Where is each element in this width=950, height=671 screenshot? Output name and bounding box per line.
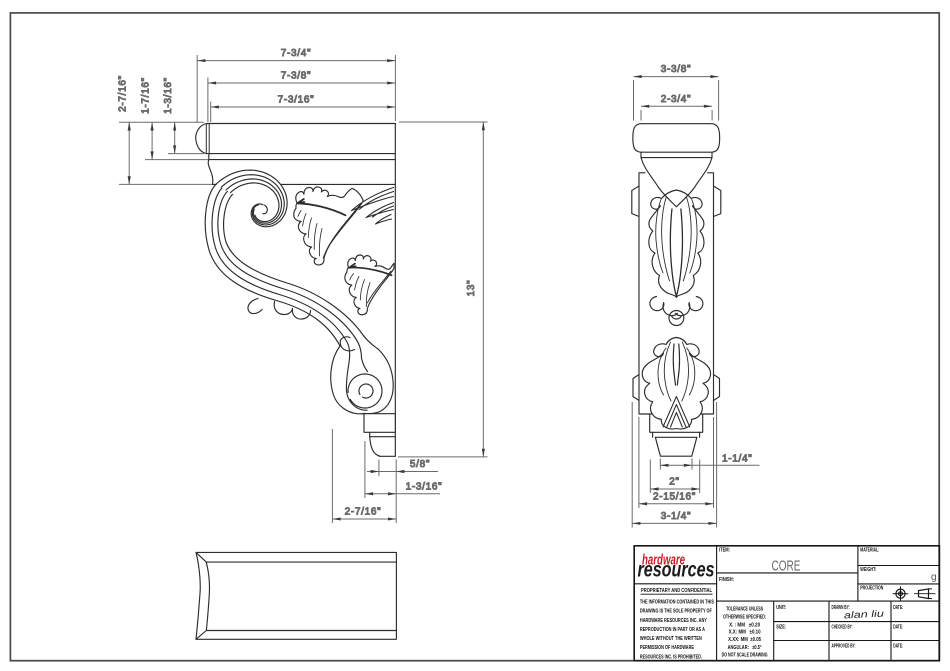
svg-text:7-3/4": 7-3/4" [281, 48, 312, 59]
svg-text:2": 2" [669, 477, 680, 488]
svg-text:X.X: MM ±0.10: X.X: MM ±0.10 [729, 630, 761, 636]
svg-text:2-7/16": 2-7/16" [118, 75, 129, 112]
svg-text:WEIGHT:: WEIGHT: [860, 567, 876, 573]
svg-text:THE INFORMATION CONTAINED IN T: THE INFORMATION CONTAINED IN THIS [640, 599, 714, 605]
svg-text:PROJECTION: PROJECTION [860, 586, 883, 592]
svg-text:2-7/16": 2-7/16" [345, 507, 382, 518]
svg-text:5/8": 5/8" [410, 459, 430, 470]
svg-text:APPROVED BY:: APPROVED BY: [832, 643, 856, 649]
svg-text:3-3/8": 3-3/8" [661, 64, 692, 75]
svg-text:REPRODUCTION IN PART OR AS A: REPRODUCTION IN PART OR AS A [640, 627, 705, 633]
svg-text:CORE: CORE [772, 559, 801, 575]
svg-text:3-1/4": 3-1/4" [661, 511, 692, 522]
svg-text:DRAWING IS THE SOLE PROPERTY O: DRAWING IS THE SOLE PROPERTY OF [640, 609, 712, 615]
svg-text:7-3/16": 7-3/16" [278, 95, 315, 106]
svg-text:HARDWARE RESOURCES INC. ANY: HARDWARE RESOURCES INC. ANY [640, 618, 707, 624]
svg-text:WHOLE WITHOUT THE WRITTEN: WHOLE WITHOUT THE WRITTEN [640, 636, 702, 642]
svg-text:DATE:: DATE: [893, 605, 903, 611]
svg-text:PROPRIETARY AND CONFIDENTIAL: PROPRIETARY AND CONFIDENTIAL [641, 588, 712, 594]
svg-text:PERMISSION OF HARDWARE: PERMISSION OF HARDWARE [640, 645, 694, 651]
svg-text:alan liu: alan liu [844, 608, 885, 621]
svg-text:1-3/16": 1-3/16" [406, 481, 443, 492]
svg-text:UNIT:: UNIT: [776, 605, 786, 611]
svg-text:DATE:: DATE: [893, 624, 903, 630]
svg-text:X. : MM ±0.20: X. : MM ±0.20 [729, 623, 760, 629]
svg-text:2-15/16": 2-15/16" [653, 491, 696, 502]
svg-text:1-3/16": 1-3/16" [163, 77, 174, 114]
svg-text:7-3/8": 7-3/8" [281, 71, 312, 82]
svg-text:ANGULAR: ±0.5°: ANGULAR: ±0.5° [728, 645, 762, 651]
svg-text:X.XX: MM ±0.05: X.XX: MM ±0.05 [728, 637, 761, 643]
svg-text:13": 13" [466, 280, 477, 297]
svg-text:DATE:: DATE: [893, 643, 903, 649]
svg-text:ITEM:: ITEM: [719, 548, 730, 554]
svg-text:TOLERANCE UNLESS: TOLERANCE UNLESS [726, 606, 763, 612]
svg-text:g: g [931, 572, 937, 583]
svg-text:2-3/4": 2-3/4" [661, 94, 692, 105]
svg-text:DO NOT SCALE DRAWING: DO NOT SCALE DRAWING [722, 652, 768, 658]
svg-text:FINISH:: FINISH: [719, 577, 734, 583]
svg-text:CHECKED BY:: CHECKED BY: [832, 624, 853, 630]
svg-text:1-1/4": 1-1/4" [722, 454, 753, 465]
svg-text:resources: resources [638, 559, 715, 582]
svg-text:OTHERWISE SPECIFIED:: OTHERWISE SPECIFIED: [723, 614, 766, 620]
svg-text:SIZE:: SIZE: [776, 624, 786, 630]
svg-text:RESOURCES INC. IS PROHIBITED.: RESOURCES INC. IS PROHIBITED. [640, 654, 702, 660]
svg-text:1-7/16": 1-7/16" [141, 77, 152, 114]
svg-text:MATERIAL:: MATERIAL: [860, 548, 879, 554]
